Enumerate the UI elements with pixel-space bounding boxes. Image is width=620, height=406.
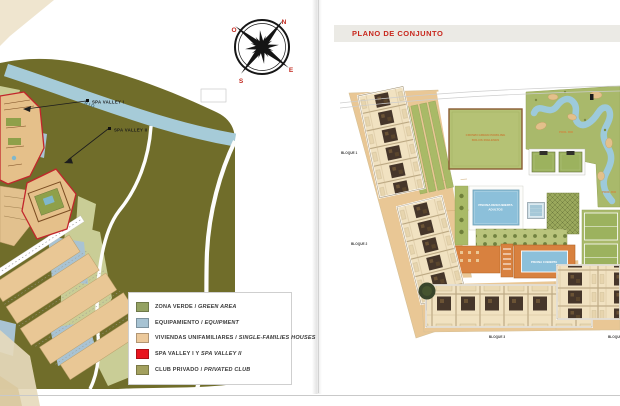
legend-swatch-private-club: [136, 365, 149, 375]
pool-rio-label: POOL RIO: [559, 130, 574, 134]
legend-row-private-club: CLUB PRIVADO / PRIVATED CLUB: [136, 365, 284, 375]
page-corner-tint: [0, 0, 54, 46]
paddle-courts: [529, 149, 585, 175]
terrace: [455, 244, 513, 277]
adult-pool: PISCINA DESCUBIERTA ADULTOS: [469, 186, 523, 230]
master-plan: CROWN GREEN BOWLING BOLOS INGLESES POOL …: [310, 0, 620, 406]
left-page: RIO SPA VALLEY I SPA VALLEY II: [0, 0, 310, 406]
lazy-river-zone: POOL RIO POOL RIO: [526, 86, 620, 207]
callout-spa-valley-2: SPA VALLEY II: [114, 128, 148, 133]
legend-row-houses: VIVIENDAS UNIFAMILIARES / SINGLE-FAMILIE…: [136, 333, 284, 343]
bowling-subtitle: BOLOS INGLESES: [472, 138, 500, 142]
compass-west-label: O: [231, 27, 236, 34]
pool-garden-strip: [455, 186, 468, 245]
compass-north-label: N: [282, 19, 287, 26]
map-legend: ZONA VERDE / GREEN AREA EQUIPAMIENTO / E…: [128, 292, 292, 385]
flag-marker: [590, 94, 594, 100]
bloque-4-label: BLOQUE 4: [608, 335, 620, 339]
legend-swatch-equipment: [136, 318, 149, 328]
page-bottom-edge: [0, 395, 620, 396]
legend-label: VIVIENDAS UNIFAMILIARES / SINGLE-FAMILIE…: [155, 335, 316, 341]
bloque-2-label: BLOQUE 2: [351, 242, 368, 246]
bowling-title: CROWN GREEN BOWLING: [466, 133, 506, 137]
callout-spa-valley-1: SPA VALLEY I: [92, 100, 124, 105]
callout-bullet: [86, 99, 89, 102]
compass-rose: N E S O: [214, 0, 309, 95]
pool-rio-label: POOL RIO: [602, 190, 617, 194]
legend-row-spa-valley: SPA VALLEY I Y SPA VALLEY II: [136, 349, 284, 359]
bloque-4-strip: [557, 265, 620, 319]
legend-label: SPA VALLEY I Y SPA VALLEY II: [155, 351, 242, 357]
callout-bullet: [108, 127, 111, 130]
bloque-1-label: BLOQUE 1: [341, 151, 358, 155]
adult-pool-label: PISCINA DESCUBIERTA: [478, 203, 513, 207]
indoor-pool-label: PISCINA CUBIERTA: [531, 260, 557, 264]
right-page: PLANO DE CONJUNTO: [310, 0, 620, 406]
adult-pool-label: ADULTOS: [488, 208, 502, 212]
brochure-spread: RIO SPA VALLEY I SPA VALLEY II: [0, 0, 620, 406]
roundabout-tree-core: [422, 286, 432, 296]
map-sign-box: [201, 89, 226, 102]
legend-swatch-spa-valley: [136, 349, 149, 359]
pergola-trellis: [547, 193, 579, 234]
page-fold-shadow: [312, 0, 322, 394]
compass-east-label: E: [289, 67, 294, 74]
legend-label: CLUB PRIVADO / PRIVATED CLUB: [155, 367, 250, 373]
legend-swatch-green-area: [136, 302, 149, 312]
tree-garden: [476, 229, 567, 246]
legend-row-equipment: EQUIPAMIENTO / EQUIPMENT: [136, 318, 284, 328]
legend-row-green-area: ZONA VERDE / GREEN AREA: [136, 302, 284, 312]
compass-south-label: S: [239, 78, 244, 85]
page-fold-line: [318, 0, 319, 393]
legend-label: ZONA VERDE / GREEN AREA: [155, 304, 237, 310]
legend-label: EQUIPAMIENTO / EQUIPMENT: [155, 320, 239, 326]
road: [524, 150, 526, 202]
bubble-pool: [528, 203, 545, 219]
bloque-3-label: BLOQUE 3: [489, 335, 506, 339]
bowling-green: CROWN GREEN BOWLING BOLOS INGLESES: [449, 109, 522, 169]
legend-swatch-houses: [136, 333, 149, 343]
